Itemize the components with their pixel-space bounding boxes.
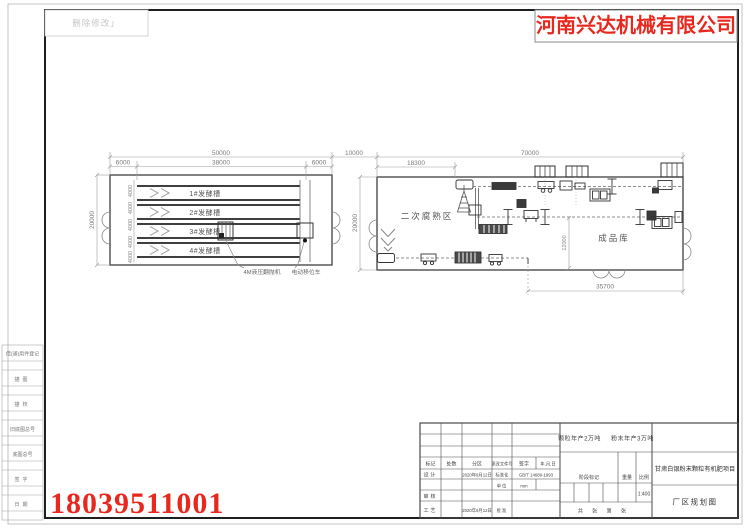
company-name: 河南兴达机械有限公司 bbox=[536, 13, 736, 37]
company-box: 河南兴达机械有限公司 bbox=[535, 10, 737, 42]
trough-label-1: 1#发酵槽 bbox=[189, 189, 220, 198]
tb-production-note: 颗粒年产2万吨 粉末年产3万吨 bbox=[558, 435, 654, 443]
strip-row-signature: 签字 bbox=[14, 476, 30, 483]
drawing-sheet: 删除修改」 河南兴达机械有限公司 bbox=[0, 0, 750, 530]
dim-20000-right: 20000 bbox=[352, 214, 359, 232]
dim-10000: 10000 bbox=[345, 150, 363, 157]
dim-12000: 12000 bbox=[562, 235, 568, 250]
tb-col-sign: 签字 bbox=[519, 461, 529, 468]
tb-project-name: 甘肃白银粉末颗粒有机肥项目 bbox=[655, 465, 735, 473]
plan-drawing-canvas: 删除修改」 河南兴达机械有限公司 bbox=[0, 0, 750, 530]
production-building-outline bbox=[377, 177, 683, 270]
curing-flow-arrows bbox=[381, 229, 395, 251]
svg-text:4000: 4000 bbox=[128, 219, 134, 231]
right-dimension-lines bbox=[358, 152, 685, 295]
svg-text:4000: 4000 bbox=[128, 202, 134, 214]
tb-approve-label: 批准 bbox=[497, 507, 508, 514]
rooftop-units bbox=[535, 163, 683, 177]
tb-standard-value: GB/T 14689-1993 bbox=[519, 473, 554, 478]
dim-6000-left: 6000 bbox=[116, 160, 131, 167]
leader-lines bbox=[226, 241, 304, 268]
strip-row-base-no: 底图总号 bbox=[12, 451, 32, 458]
tb-unit-label: 单位 bbox=[497, 483, 508, 490]
warehouse-label: 成品库 bbox=[598, 233, 630, 243]
tb-col-mark: 标记 bbox=[425, 461, 435, 468]
production-doors bbox=[369, 220, 691, 278]
dim-20000-left: 20000 bbox=[89, 211, 96, 229]
trough-label-3: 3#发酵槽 bbox=[189, 227, 220, 236]
shifter-label: 电动移位车 bbox=[292, 268, 321, 276]
tb-col-change-no: 更改文件号 bbox=[491, 461, 512, 468]
dim-50000: 50000 bbox=[212, 150, 230, 157]
outer-border bbox=[8, 4, 742, 524]
svg-text:4000: 4000 bbox=[128, 236, 134, 248]
dim-35700: 35700 bbox=[596, 284, 614, 291]
transfer-car-rails bbox=[300, 180, 310, 262]
strip-row-tracing-check: 描校 bbox=[14, 401, 30, 408]
tb-unit-value: mm bbox=[520, 484, 528, 489]
tb-process-label: 工艺 bbox=[423, 508, 437, 514]
fermentation-building bbox=[102, 175, 340, 268]
production-building bbox=[358, 152, 691, 295]
left-margin-strip-labels: 借(通)用件登记 描图 描校 旧底图总号 底图总号 签字 日期 bbox=[6, 351, 39, 509]
tb-stage-label: 阶段标记 bbox=[579, 474, 599, 481]
phone-number: 18039511001 bbox=[50, 487, 224, 520]
tb-design-date: 2020年9月12日 bbox=[462, 472, 492, 479]
trough-pitch-dims: 4000 4000 4000 4000 4000 bbox=[128, 185, 134, 263]
tb-scale-label: 比例 bbox=[639, 474, 649, 481]
trough-flow-arrows bbox=[150, 189, 169, 255]
strip-row-borrowed: 借(通)用件登记 bbox=[6, 351, 39, 358]
tb-weight-label: 重量 bbox=[622, 474, 632, 481]
trough-label-4: 4#发酵槽 bbox=[189, 246, 220, 255]
tb-design-label: 设计 bbox=[423, 472, 437, 479]
dim-38000: 38000 bbox=[212, 160, 230, 167]
tb-scale-value: 1:400 bbox=[638, 492, 651, 498]
strip-row-date: 日期 bbox=[14, 502, 30, 508]
process-equipment bbox=[378, 179, 684, 265]
dim-70000: 70000 bbox=[521, 150, 539, 157]
dim-18300: 18300 bbox=[407, 160, 425, 167]
stamp-box: 删除修改」 bbox=[45, 10, 148, 36]
tb-standard-label: 标准化 bbox=[496, 472, 510, 479]
svg-text:4000: 4000 bbox=[128, 185, 134, 197]
tb-col-count: 处数 bbox=[446, 461, 456, 468]
tb-drawing-title: 厂区规划图 bbox=[673, 497, 718, 507]
tb-process-date: 2020年9月12日 bbox=[462, 507, 492, 514]
title-block-texts: 标记 处数 分区 更改文件号 签字 年,月,日 设计 2020年9月12日 标准… bbox=[423, 435, 735, 515]
curing-area-label: 二次腐熟区 bbox=[401, 211, 454, 221]
svg-text:4000: 4000 bbox=[128, 251, 134, 263]
tb-col-date: 年,月,日 bbox=[540, 461, 555, 468]
stamp-note: 删除修改」 bbox=[72, 18, 120, 28]
turner-label: 4M液压翻抛机 bbox=[243, 268, 280, 276]
strip-row-old-base-no: 旧底图总号 bbox=[10, 426, 35, 433]
transfer-car bbox=[297, 223, 313, 243]
tb-col-zone: 分区 bbox=[472, 461, 482, 468]
strip-row-tracing: 描图 bbox=[14, 376, 30, 383]
trough-labels: 1#发酵槽 2#发酵槽 3#发酵槽 4#发酵槽 bbox=[189, 189, 220, 255]
trough-label-2: 2#发酵槽 bbox=[189, 208, 220, 217]
tb-review-label: 审核 bbox=[423, 493, 437, 500]
dim-6000-right: 6000 bbox=[312, 160, 327, 167]
tb-sheet-note: 共 张 第 张 bbox=[578, 508, 630, 515]
